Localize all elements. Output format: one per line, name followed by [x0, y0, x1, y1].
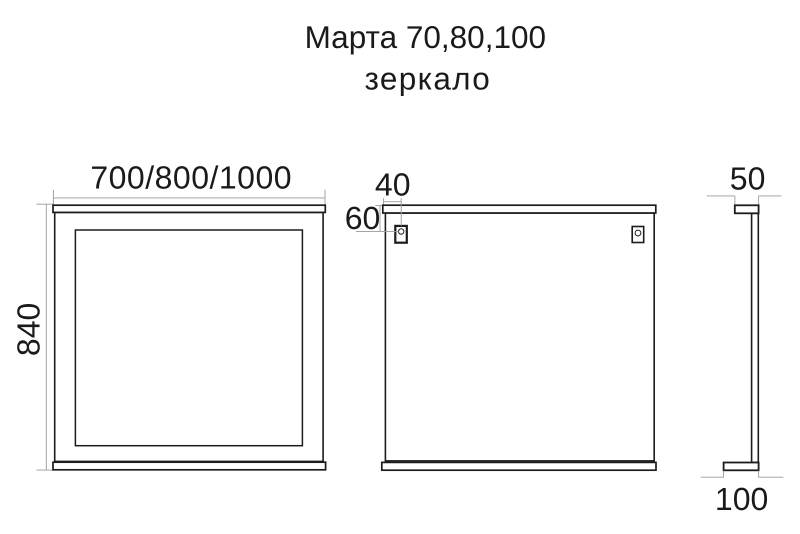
- svg-text:Марта 70,80,100: Марта 70,80,100: [305, 19, 546, 55]
- svg-text:840: 840: [10, 303, 46, 356]
- svg-text:60: 60: [345, 200, 381, 236]
- svg-text:700/800/1000: 700/800/1000: [90, 160, 292, 196]
- svg-text:40: 40: [375, 166, 411, 202]
- svg-text:зеркало: зеркало: [365, 61, 491, 97]
- svg-text:100: 100: [715, 481, 768, 517]
- svg-text:50: 50: [730, 161, 766, 197]
